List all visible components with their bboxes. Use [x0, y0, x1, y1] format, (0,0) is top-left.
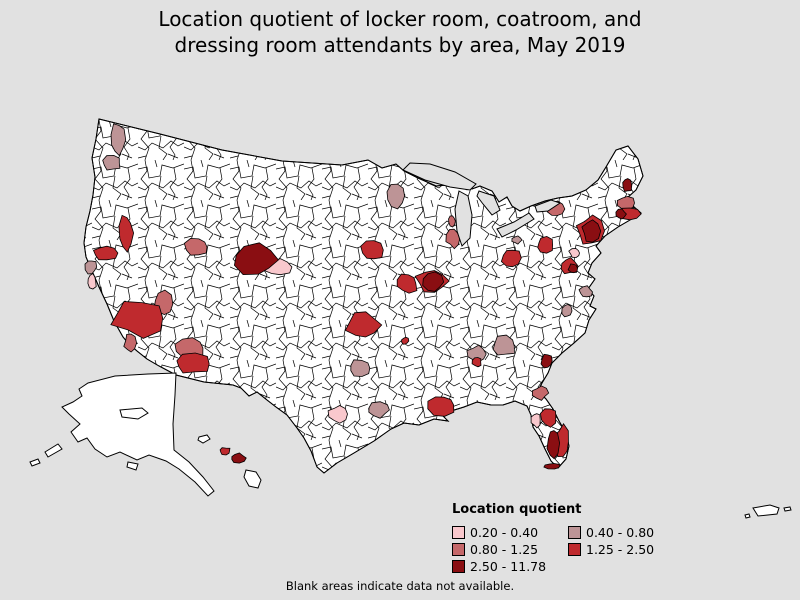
region-tulsa [351, 360, 370, 377]
legend-label-q4: 1.25 - 2.50 [586, 542, 654, 557]
page-title-line-2: dressing room attendants by area, May 20… [0, 32, 800, 58]
region-key-west [544, 464, 560, 470]
puerto-rico [745, 505, 791, 518]
legend-swatch-q2 [568, 526, 581, 539]
legend-title: Location quotient [452, 502, 654, 517]
legend-swatch-q3 [452, 543, 465, 556]
region-maui [232, 453, 246, 463]
legend-grid: 0.20 - 0.40 0.40 - 0.80 0.80 - 1.25 1.25… [452, 525, 654, 574]
legend-swatch-q5 [452, 560, 465, 573]
page-title: Location quotient of locker room, coatro… [0, 6, 800, 58]
legend-label-q1: 0.20 - 0.40 [470, 525, 538, 540]
legend-swatch-q4 [568, 543, 581, 556]
footer-note: Blank areas indicate data not available. [0, 579, 800, 593]
legend-label-q3: 0.80 - 1.25 [470, 542, 538, 557]
region-new-orleans [428, 397, 454, 416]
legend-item: 0.80 - 1.25 [452, 542, 564, 557]
legend: Location quotient 0.20 - 0.40 0.40 - 0.8… [452, 502, 654, 574]
legend-swatch-q1 [452, 526, 465, 539]
bls-location-quotient-map-page: Location quotient of locker room, coatro… [0, 0, 800, 600]
aleutian-island [45, 444, 62, 457]
us-choropleth-map [0, 0, 800, 600]
big-island [244, 470, 261, 488]
kauai [198, 435, 210, 443]
legend-item: 2.50 - 11.78 [452, 559, 564, 574]
region-oahu [220, 448, 230, 455]
puerto-rico-outline [753, 505, 779, 516]
legend-item: 0.40 - 0.80 [568, 525, 654, 540]
small-island [745, 514, 750, 518]
region-midcoast-maine [623, 179, 632, 192]
page-title-line-1: Location quotient of locker room, coatro… [0, 6, 800, 32]
legend-item: 0.20 - 0.40 [452, 525, 564, 540]
legend-label-q5: 2.50 - 11.78 [470, 559, 546, 574]
legend-item: 1.25 - 2.50 [568, 542, 654, 557]
kodiak-island [127, 462, 138, 470]
vieques-island [784, 507, 791, 511]
alaska-outline [62, 373, 214, 496]
region-phoenix-tucson [177, 353, 209, 373]
legend-label-q2: 0.40 - 0.80 [586, 525, 654, 540]
alaska [30, 373, 214, 496]
hawaii [198, 435, 261, 488]
aleutian-island-2 [30, 459, 40, 466]
